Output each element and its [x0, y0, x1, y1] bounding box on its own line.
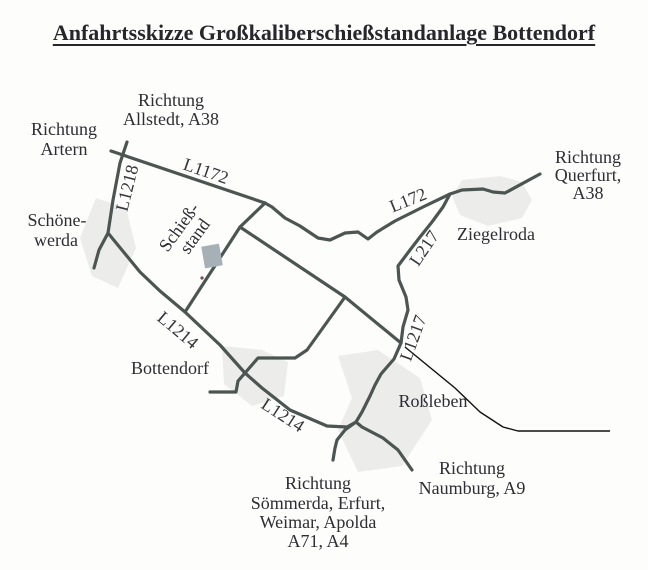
place-label-ziegelroda: Ziegelroda [457, 224, 535, 244]
direction-label-allstedt-line-0: Richtung [138, 90, 204, 110]
settlement-areas [80, 176, 532, 472]
direction-label-querfurt-line-0: Richtung [555, 147, 621, 167]
direction-label-querfurt-line-1: Querfurt, [555, 165, 621, 185]
direction-label-naumburg-line-0: Richtung [439, 458, 505, 478]
direction-label-soemmerda-line-1: Sömmerda, Erfurt, [251, 493, 385, 513]
map-canvas: L1172 L1218 L172 L217 L1217 L1214 L1214 … [0, 0, 648, 570]
direction-labels: Richtung Artern Richtung Allstedt, A38 R… [31, 90, 621, 551]
direction-label-allstedt-line-1: Allstedt, A38 [123, 109, 219, 129]
road-label-l1214-upper: L1214 [154, 307, 203, 353]
direction-label-artern-line-1: Artern [41, 139, 88, 159]
direction-label-soemmerda-line-2: Weimar, Apolda [260, 512, 377, 532]
direction-label-querfurt-line-2: A38 [573, 183, 604, 203]
direction-label-soemmerda-line-3: A71, A4 [287, 531, 348, 551]
place-label-schoenewerda-line-1: werda [34, 230, 78, 250]
road-label-l1214-lower: L1214 [258, 394, 308, 436]
settlement-area-bottendorf [222, 346, 288, 406]
junction-pointer-line [405, 347, 610, 431]
road-label-l1218: L1218 [112, 163, 143, 213]
place-label-bottendorf: Bottendorf [131, 358, 209, 378]
shooting-range-marker [201, 244, 223, 269]
road-label-l217: L217 [405, 227, 443, 270]
direction-label-artern-line-0: Richtung [31, 119, 97, 139]
direction-label-soemmerda-line-0: Richtung [285, 473, 351, 493]
road-label-l172: L172 [387, 184, 430, 217]
place-label-rossleben: Roßleben [399, 391, 468, 411]
direction-label-naumburg-line-1: Naumburg, A9 [419, 478, 526, 498]
road-l1214 [108, 233, 356, 427]
map-page: Anfahrtsskizze Großkaliberschießstandanl… [0, 0, 648, 570]
small-dot-marker [200, 276, 203, 279]
place-label-schoenewerda-line-0: Schöne- [28, 210, 87, 230]
road-diagonal-connector [240, 227, 401, 343]
